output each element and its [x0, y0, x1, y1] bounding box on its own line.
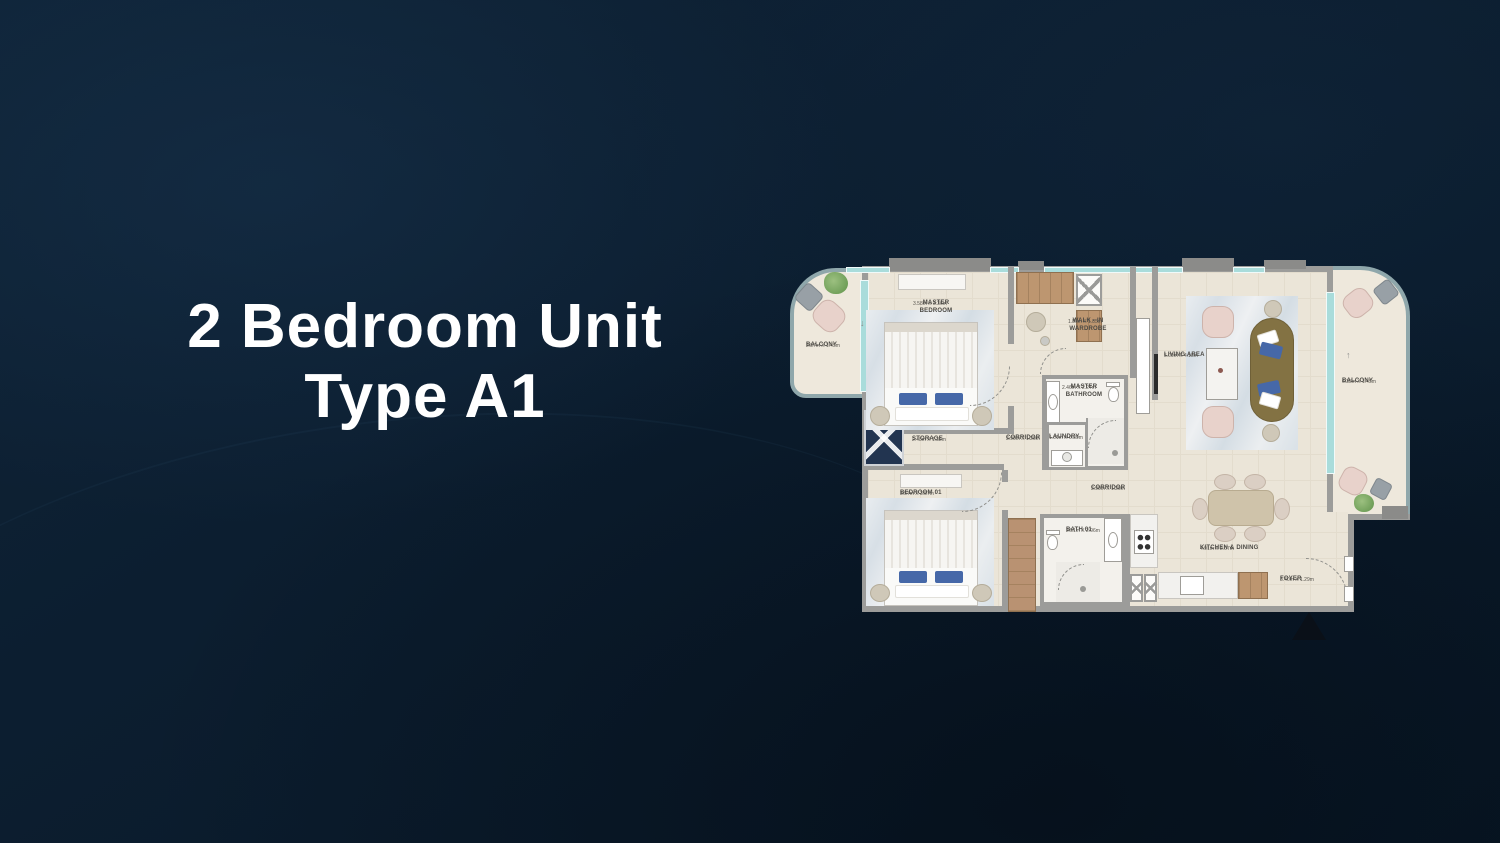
dining-table — [1208, 490, 1274, 526]
side-table — [1262, 424, 1280, 442]
bed-duvet — [885, 520, 977, 568]
master-bed — [884, 322, 978, 426]
plant — [824, 272, 848, 294]
wall — [1008, 406, 1014, 434]
armchair — [1202, 406, 1234, 438]
stove — [1134, 530, 1154, 554]
page-title: 2 Bedroom Unit Type A1 — [110, 292, 740, 432]
table-decor — [1218, 368, 1223, 373]
shower-head — [1080, 586, 1086, 592]
duct-marker — [1076, 274, 1102, 306]
wardrobe-cabinet — [1016, 272, 1074, 304]
bed-pillow-blue — [935, 393, 963, 405]
dining-chair — [1192, 498, 1208, 520]
dining-chair — [1214, 474, 1236, 490]
dining-chair — [1214, 526, 1236, 542]
window — [1326, 292, 1335, 474]
wardrobe-pouf — [1026, 312, 1046, 332]
tv — [1154, 354, 1158, 394]
bed-pillow-blue — [899, 571, 927, 583]
kitchen-sink — [1180, 576, 1204, 595]
washer-door — [1062, 452, 1072, 462]
wardrobe-stool — [1040, 336, 1050, 346]
background: 2 Bedroom Unit Type A1 — [0, 0, 1500, 843]
wall-column — [889, 258, 991, 271]
plant — [1354, 494, 1374, 512]
bed-headboard — [885, 323, 977, 332]
bed-pillow-white — [895, 407, 969, 421]
entry-arrow — [1292, 612, 1326, 640]
balcony-access-arrow-icon: ↑ — [1346, 350, 1351, 360]
dining-chair — [1244, 526, 1266, 542]
media-cabinet — [1136, 318, 1150, 414]
window — [1233, 267, 1265, 273]
door-jamb — [1344, 586, 1354, 602]
shower-head — [1112, 450, 1118, 456]
wall-column — [1264, 260, 1306, 269]
floor-plan: ↓ ↑ BALCONY2.87m X 1.45m MASTER BEDROOM3… — [788, 256, 1412, 640]
toilet — [1047, 535, 1058, 550]
duct-marker — [1130, 574, 1143, 602]
wall — [1002, 470, 1008, 482]
bed-pillow-blue — [899, 393, 927, 405]
sink-basin — [1048, 394, 1058, 410]
wall-column — [1382, 506, 1408, 519]
kitchen-counter-wood — [1238, 572, 1268, 599]
nightstand — [870, 406, 890, 426]
dining-chair — [1244, 474, 1266, 490]
toilet — [1108, 387, 1119, 402]
wall — [1008, 266, 1014, 344]
window — [846, 267, 890, 273]
window — [990, 267, 1019, 273]
bed-pillow-blue — [935, 571, 963, 583]
side-table — [1264, 300, 1282, 318]
wall-column — [1018, 261, 1044, 270]
bed-duvet — [885, 332, 977, 388]
nightstand — [972, 406, 992, 426]
master-bedroom-dresser — [898, 274, 966, 290]
bed-headboard — [885, 511, 977, 520]
corridor-wood-floor — [1008, 518, 1036, 612]
wall-column — [1182, 258, 1234, 271]
bed-pillow-white — [895, 585, 969, 598]
duct-marker — [1144, 574, 1157, 602]
dining-chair — [1274, 498, 1290, 520]
nightstand — [972, 584, 992, 602]
door-jamb — [1344, 556, 1354, 572]
balcony-access-arrow-icon: ↓ — [860, 318, 865, 328]
nightstand — [870, 584, 890, 602]
title-line-1: 2 Bedroom Unit — [110, 292, 740, 362]
sink-basin — [1108, 532, 1118, 548]
bedroom01-dresser — [900, 474, 962, 488]
bedroom01-bed — [884, 510, 978, 606]
title-line-2: Type A1 — [110, 362, 740, 432]
coffee-table — [1206, 348, 1238, 400]
armchair — [1202, 306, 1234, 338]
